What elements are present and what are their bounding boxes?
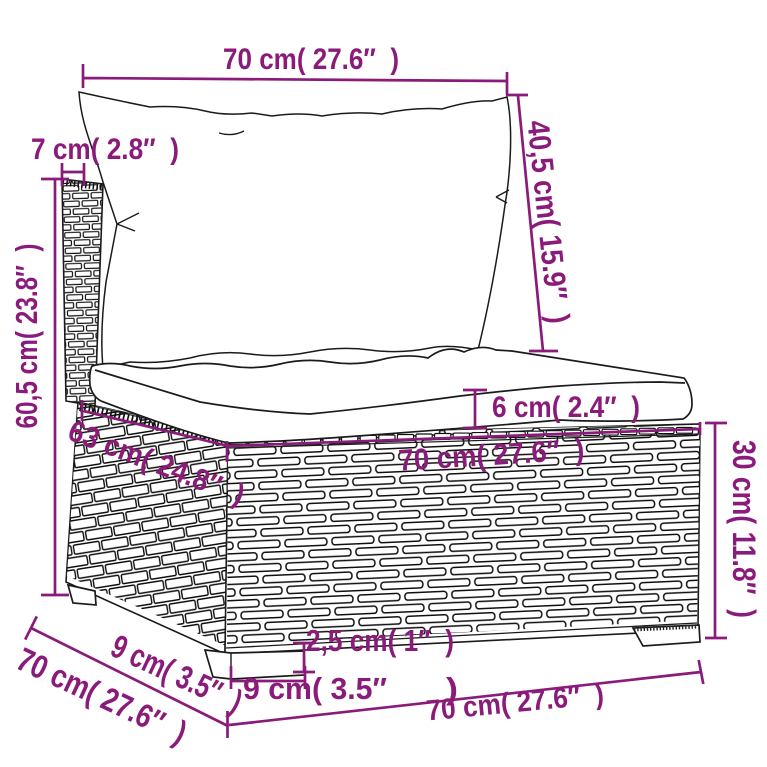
svg-text:70 cm( 27.6″ ): 70 cm( 27.6″ ) — [223, 43, 399, 76]
svg-text:2,5 cm( 1″ ): 2,5 cm( 1″ ) — [306, 623, 454, 658]
svg-text:30 cm( 11.8″ ): 30 cm( 11.8″ ) — [726, 440, 762, 618]
svg-text:9 cm( 3.5″: 9 cm( 3.5″ — [243, 671, 387, 706]
svg-text:7 cm( 2.8″ ): 7 cm( 2.8″ ) — [31, 133, 179, 166]
svg-text:6 cm( 2.4″ ): 6 cm( 2.4″ ) — [492, 391, 640, 424]
svg-text:60,5 cm( 23.8″ ): 60,5 cm( 23.8″ ) — [9, 244, 44, 429]
